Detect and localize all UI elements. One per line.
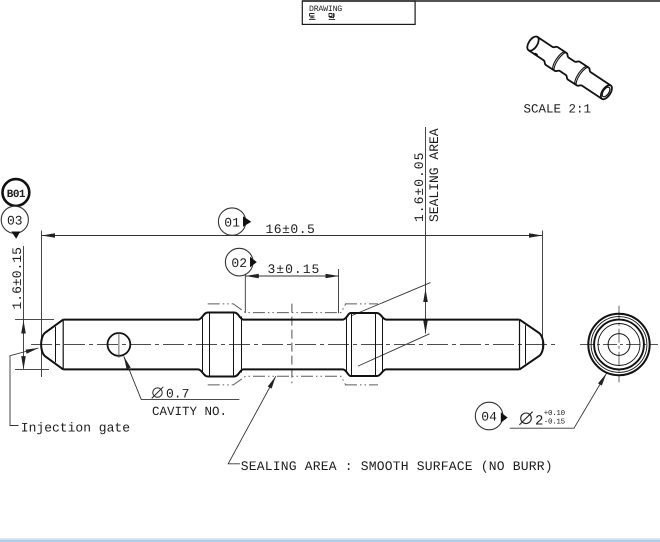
svg-text:16±0.5: 16±0.5 [266, 222, 316, 237]
svg-text:01: 01 [224, 215, 240, 230]
svg-text:2: 2 [535, 414, 543, 430]
svg-text:1.6±0.15: 1.6±0.15 [10, 247, 25, 309]
svg-text:SCALE 2:1: SCALE 2:1 [524, 103, 592, 117]
svg-text:Injection gate: Injection gate [21, 421, 130, 436]
svg-text:1.6±0.05: 1.6±0.05 [412, 152, 427, 222]
svg-text:B01: B01 [7, 189, 26, 201]
svg-text:CAVITY NO.: CAVITY NO. [152, 405, 227, 419]
svg-text:SEALING AREA: SEALING AREA [427, 128, 442, 222]
svg-text:-0.15: -0.15 [544, 417, 566, 426]
svg-text:SEALING AREA : SMOOTH SURFACE: SEALING AREA : SMOOTH SURFACE (NO BURR) [241, 459, 553, 474]
svg-text:3±0.15: 3±0.15 [268, 262, 321, 277]
svg-text:02: 02 [231, 256, 247, 271]
svg-text:03: 03 [7, 214, 23, 229]
svg-text:+0.10: +0.10 [544, 409, 566, 418]
svg-text:04: 04 [481, 410, 497, 425]
svg-text:0.7: 0.7 [166, 386, 189, 401]
svg-text:DRAWING: DRAWING [309, 5, 342, 14]
